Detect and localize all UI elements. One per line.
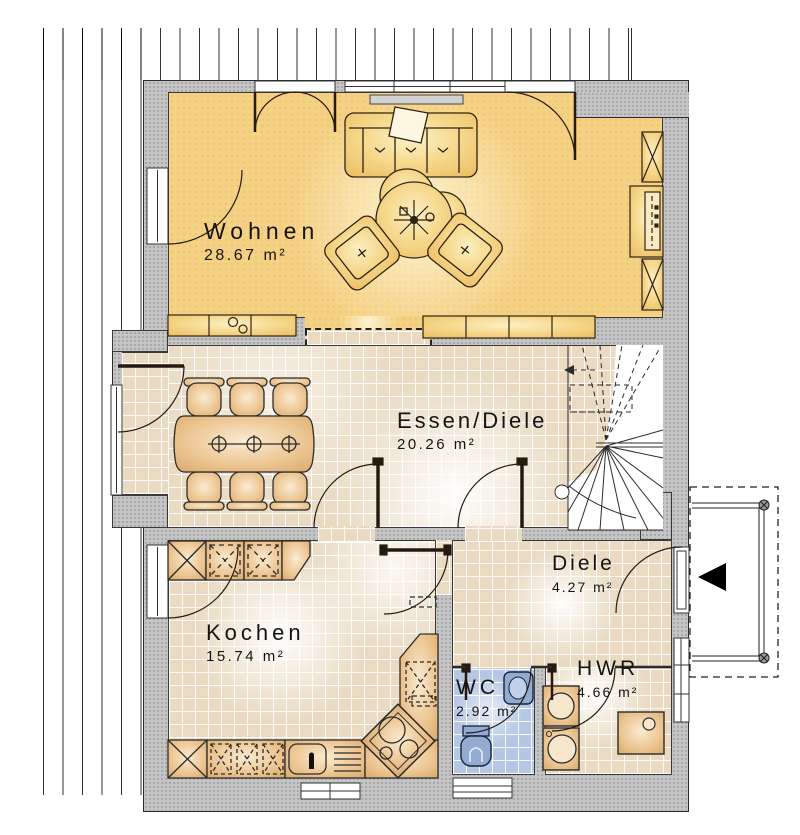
wohnen-opening [305,316,432,330]
door-frame-wohnen-left [147,168,168,244]
room-essen-diele [168,345,663,528]
porch-post-icon [759,500,769,510]
door-frame-kochen-left [147,545,168,618]
doorway-essen-diele [465,526,522,542]
door-frame-terrace-left-top [255,81,335,92]
entrance-porch [690,487,778,677]
wohnen-opening-floor [305,330,432,345]
doorway-essen-kochen [318,526,375,542]
bay-wall-top [112,330,168,352]
porch-post-icon-2 [759,653,769,663]
door-frame-terrace-right-top [505,81,575,92]
passage-kochen-diele [436,540,452,595]
room-diele [452,540,672,668]
window-top [345,81,505,92]
door-frame-bay [111,385,122,495]
corner-wall-topright [574,92,689,118]
window-hwr-right [674,638,689,722]
bay-wall-bottom [112,495,168,528]
room-kochen [168,540,436,778]
room-wohnen [168,92,663,318]
wall-stub-stairs [640,492,672,540]
front-door-frame [674,547,689,613]
bay-floor [122,352,168,495]
room-wc [452,668,535,775]
window-kochen-bottom [301,783,360,799]
room-hwr [545,668,672,775]
floorplan: Wohnen 28.67 m² Essen/Diele 20.26 m² Koc… [0,0,800,835]
window-wc-bottom [453,778,512,798]
entrance-arrow-icon [698,563,726,591]
